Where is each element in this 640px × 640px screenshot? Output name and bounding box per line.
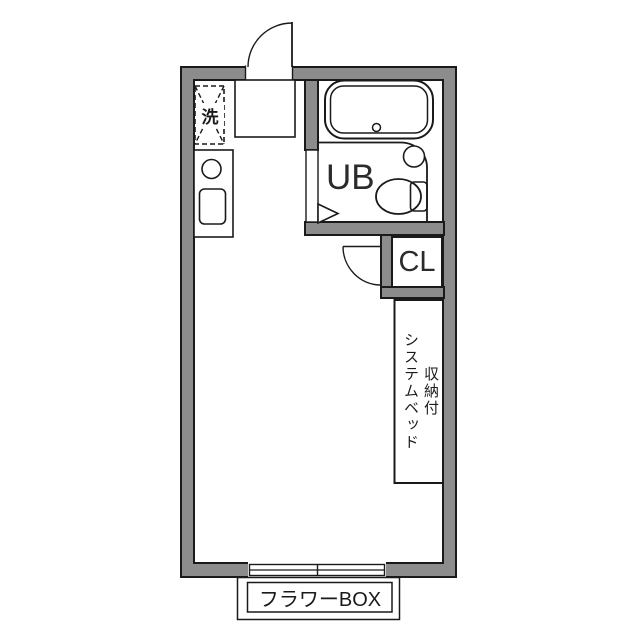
wall-ub-left — [305, 80, 318, 150]
bed-label: 収納付 システムベッド — [398, 303, 440, 480]
toilet-bowl — [376, 179, 421, 214]
kitchen-burner — [202, 160, 221, 179]
bed-label-line-1: 収納付 — [420, 303, 440, 480]
bathtub-drain — [373, 124, 381, 132]
corner-wash-basin — [404, 146, 425, 167]
wall-ub-bottom — [305, 222, 444, 235]
entrance-step — [235, 80, 295, 137]
unit-bath-label: UB — [326, 161, 378, 195]
flower-box-label: フラワーBOX — [248, 583, 392, 611]
floor-plan: 洗 UB CL 収納付 システムベッド フラワーBOX — [0, 0, 640, 640]
closet-door-swing-arc — [343, 247, 381, 286]
wall-closet-bottom — [381, 287, 444, 298]
floor-plan-drawing — [0, 0, 640, 640]
closet-label: CL — [392, 237, 442, 287]
washer-pan-label: 洗 — [196, 103, 224, 127]
ub-door-opening — [306, 150, 318, 222]
kitchen-sink — [200, 189, 226, 224]
ub-door-triangle — [318, 204, 338, 223]
entrance-door-swing-arc — [248, 23, 292, 67]
bed-label-line-2: システムベッド — [400, 303, 420, 480]
